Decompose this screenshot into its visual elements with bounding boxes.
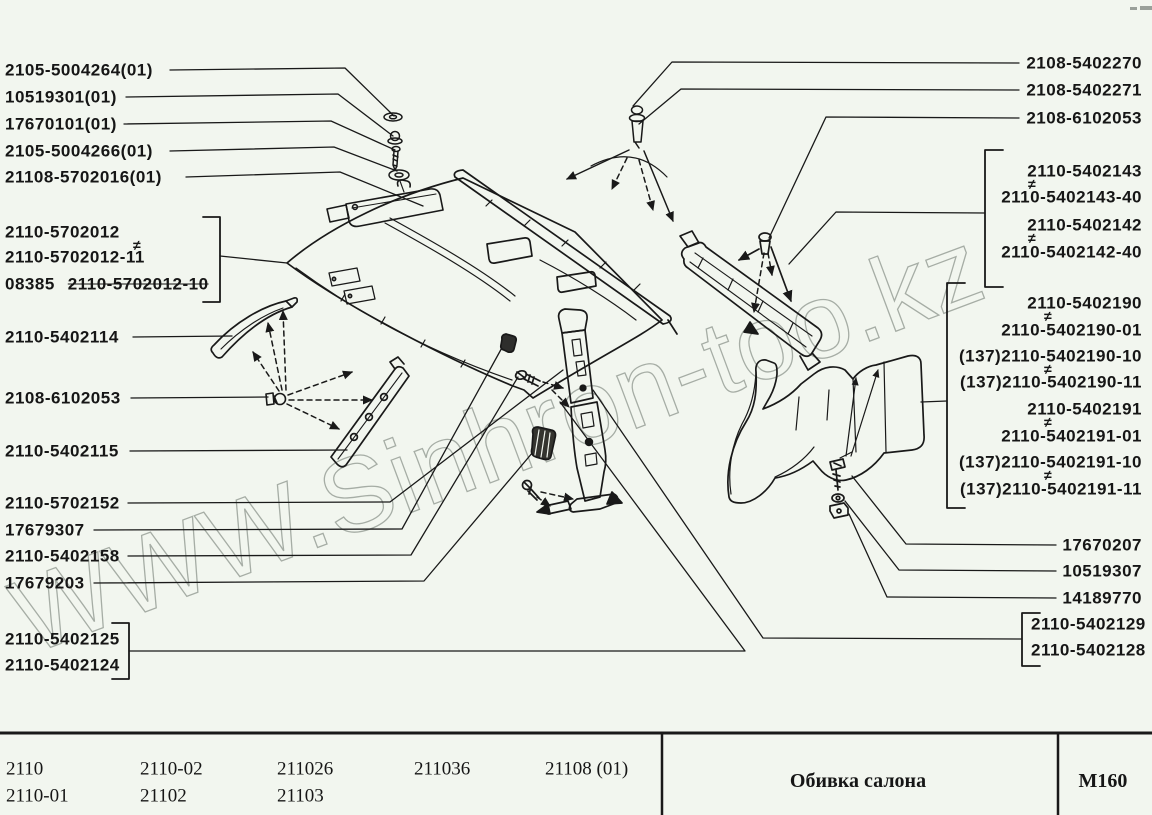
model-code: 21108 (01) [545, 760, 628, 779]
part-label: 2110-5402143 [1027, 163, 1142, 180]
part-label: 2105-5004264(01) [5, 62, 153, 79]
part-label: 2110-5702152 [5, 495, 120, 512]
catalog-page: WWW.Sinhron-too.kz [0, 0, 1152, 815]
washer-icon [832, 494, 844, 502]
section-title: Обивка салона [790, 771, 926, 791]
model-code: 2110 [6, 760, 43, 779]
part-label: 2108-6102053 [5, 390, 121, 407]
part-label: 2108-5402271 [1026, 82, 1142, 99]
part-label: 10519301(01) [5, 89, 117, 106]
part-label: 2110-5402128 [1031, 642, 1146, 659]
part-label: 2110-5402158 [5, 548, 120, 565]
model-code: 21103 [277, 787, 324, 806]
part-label: 2110-5402124 [5, 657, 120, 674]
model-code: 211036 [414, 760, 470, 779]
model-code: 21102 [140, 787, 187, 806]
lamp-opening [487, 238, 532, 263]
part-label: 17679307 [5, 522, 85, 539]
sun-visor [327, 180, 443, 226]
lamp-opening [557, 272, 596, 292]
part-label: 2110-5402129 [1031, 616, 1146, 633]
model-code: 211026 [277, 760, 333, 779]
clip-part [501, 334, 516, 352]
handle-cap-part [532, 427, 556, 460]
part-label: 2110-5402190-01 [1001, 322, 1142, 339]
part-label: 2110-5402115 [5, 443, 119, 460]
part-label: 083852110-5702012-10 [5, 276, 209, 293]
part-label: 2110-5702012 [5, 224, 120, 241]
scan-artifact [1130, 6, 1152, 10]
part-label: 2105-5004266(01) [5, 143, 153, 160]
part-label: 2110-5702012-11 [5, 249, 145, 266]
washer-icon [389, 170, 409, 180]
part-label: 14189770 [1062, 590, 1142, 607]
mounting-screw [830, 459, 845, 490]
part-label: 2110-5402143-40 [1001, 189, 1142, 206]
part-label: 2110-5402142-40 [1001, 244, 1142, 261]
part-label: 2110-5402125 [5, 631, 120, 648]
clip-nut [830, 503, 848, 518]
model-code: 2110-02 [140, 760, 203, 779]
part-label: 17679203 [5, 575, 85, 592]
part-label: 2108-6102053 [1026, 110, 1142, 127]
part-label-prefix: 08385 [5, 276, 55, 293]
part-label: 17670101(01) [5, 116, 117, 133]
part-label: 2108-5402270 [1026, 55, 1142, 72]
cap-icon [391, 132, 400, 141]
part-label: (137)2110-5402191-11 [960, 481, 1142, 498]
exploded-diagram: WWW.Sinhron-too.kz [0, 0, 1152, 815]
part-label: (137)2110-5402190-11 [960, 374, 1142, 391]
part-label: 10519307 [1062, 563, 1142, 580]
part-label: 2110-5402114 [5, 329, 119, 346]
part-label: 21108-5702016(01) [5, 169, 162, 186]
part-label: 2110-5402191-01 [1001, 428, 1142, 445]
part-label-superseded: 2110-5702012-10 [68, 275, 209, 294]
model-code: 2110-01 [6, 787, 69, 806]
page-code: М160 [1079, 771, 1128, 791]
part-label: 17670207 [1062, 537, 1142, 554]
part-label: 2110-5402142 [1027, 217, 1142, 234]
button-clip-left [253, 311, 372, 429]
roof-fastener-pin [567, 106, 673, 221]
